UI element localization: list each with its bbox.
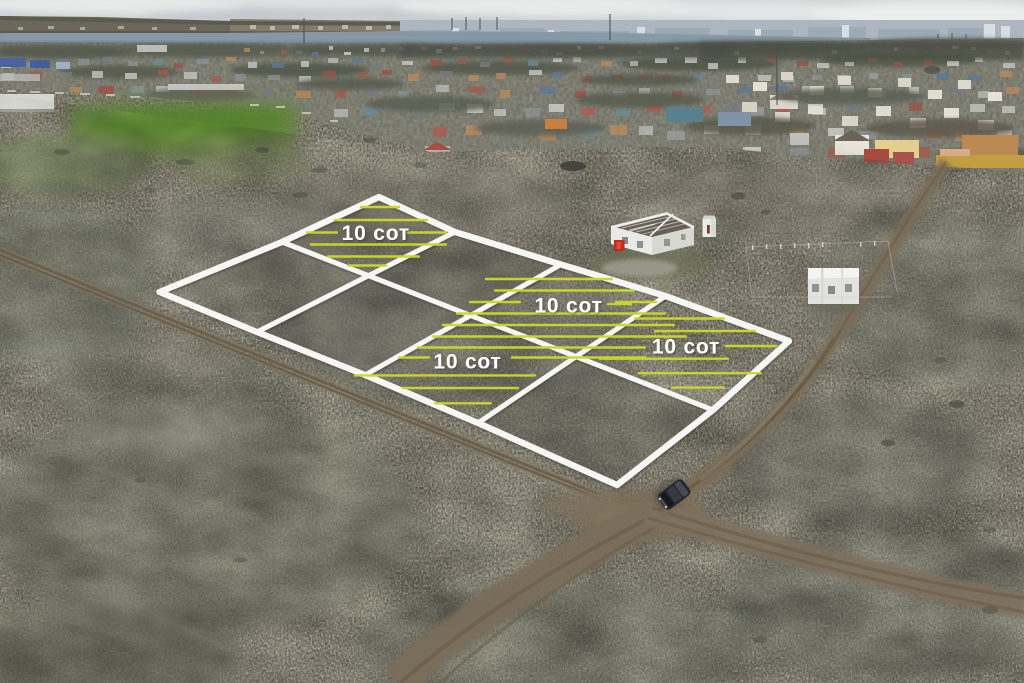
svg-text:10 сот: 10 сот: [652, 336, 720, 359]
svg-text:10 сот: 10 сот: [433, 351, 501, 374]
svg-text:10 сот: 10 сот: [534, 295, 602, 318]
svg-text:10 сот: 10 сот: [342, 222, 410, 245]
